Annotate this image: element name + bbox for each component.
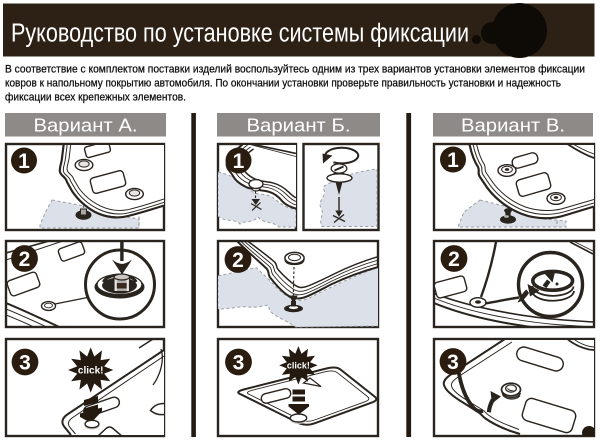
svg-text:2: 2 bbox=[232, 249, 244, 272]
svg-text:В соответствие с комплектом по: В соответствие с комплектом поставки изд… bbox=[5, 64, 585, 76]
svg-text:фиксации всех крепежных элемен: фиксации всех крепежных элементов. bbox=[5, 92, 186, 104]
svg-text:1: 1 bbox=[18, 150, 30, 173]
svg-text:Вариант В.: Вариант В. bbox=[461, 115, 565, 136]
svg-text:click!: click! bbox=[78, 366, 104, 377]
svg-text:Вариант А.: Вариант А. bbox=[34, 115, 138, 136]
svg-text:1: 1 bbox=[447, 149, 459, 172]
svg-text:1: 1 bbox=[233, 150, 245, 173]
svg-text:ковров к напольному покрытию а: ковров к напольному покрытию автомобиля.… bbox=[5, 78, 561, 90]
svg-text:2: 2 bbox=[19, 248, 31, 271]
svg-text:3: 3 bbox=[19, 352, 31, 375]
svg-text:Руководство по установке систе: Руководство по установке системы фиксаци… bbox=[11, 20, 469, 48]
svg-text:3: 3 bbox=[233, 352, 245, 375]
svg-text:click!: click! bbox=[287, 361, 310, 371]
svg-text:Вариант Б.: Вариант Б. bbox=[247, 115, 351, 136]
svg-text:2: 2 bbox=[448, 248, 460, 271]
svg-text:3: 3 bbox=[447, 351, 459, 374]
